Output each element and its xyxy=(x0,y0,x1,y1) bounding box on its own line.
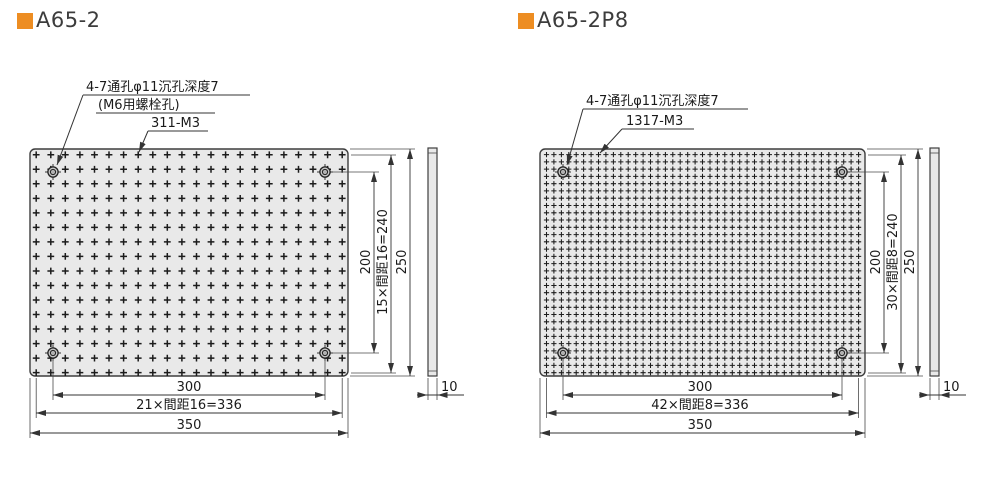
dim-text-200: 200 xyxy=(869,250,884,275)
callout-tap-count: 311-M3 xyxy=(139,116,208,152)
tapped-hole-grid xyxy=(544,152,861,375)
dim-text-336: 21×間距16=336 xyxy=(136,398,242,413)
side-view-outline xyxy=(428,148,437,376)
dim-text-300: 300 xyxy=(177,380,202,395)
dim-text-240: 30×間距8=240 xyxy=(886,213,901,310)
callout-tap-label: 311-M3 xyxy=(151,116,200,131)
dim-text-350: 350 xyxy=(688,418,713,433)
dim-text-240: 15×間距16=240 xyxy=(376,209,391,315)
callout-hole-spec: 4-7通孔φ11沉孔深度7 xyxy=(586,93,719,109)
dim-text-thickness: 10 xyxy=(441,380,458,395)
technical-drawing-canvas: 4-7通孔φ11沉孔深度7 (M6用螺栓孔) 311-M3 200 15×間距1… xyxy=(0,0,1000,495)
drawing-a65-2p8: 4-7通孔φ11沉孔深度7 1317-M3 200 30×間距8=240 250 xyxy=(540,93,966,438)
dim-text-300: 300 xyxy=(688,380,713,395)
plate-side-view: 10 xyxy=(919,148,966,400)
dim-text-thickness: 10 xyxy=(943,380,960,395)
plate-side-view: 10 xyxy=(417,148,464,400)
side-view-outline xyxy=(930,148,939,376)
drawing-a65-2: 4-7通孔φ11沉孔深度7 (M6用螺栓孔) 311-M3 200 15×間距1… xyxy=(30,79,464,438)
dim-text-250: 250 xyxy=(903,250,918,275)
callout-hole-note: (M6用螺栓孔) xyxy=(98,98,180,113)
callout-hole-spec: 4-7通孔φ11沉孔深度7 xyxy=(86,79,219,95)
dim-text-336: 42×間距8=336 xyxy=(651,398,748,413)
callout-tap-count: 1317-M3 xyxy=(600,114,694,153)
dim-text-250: 250 xyxy=(395,250,410,275)
dim-text-200: 200 xyxy=(359,250,374,275)
callout-tap-label: 1317-M3 xyxy=(626,114,683,129)
dim-text-350: 350 xyxy=(177,418,202,433)
